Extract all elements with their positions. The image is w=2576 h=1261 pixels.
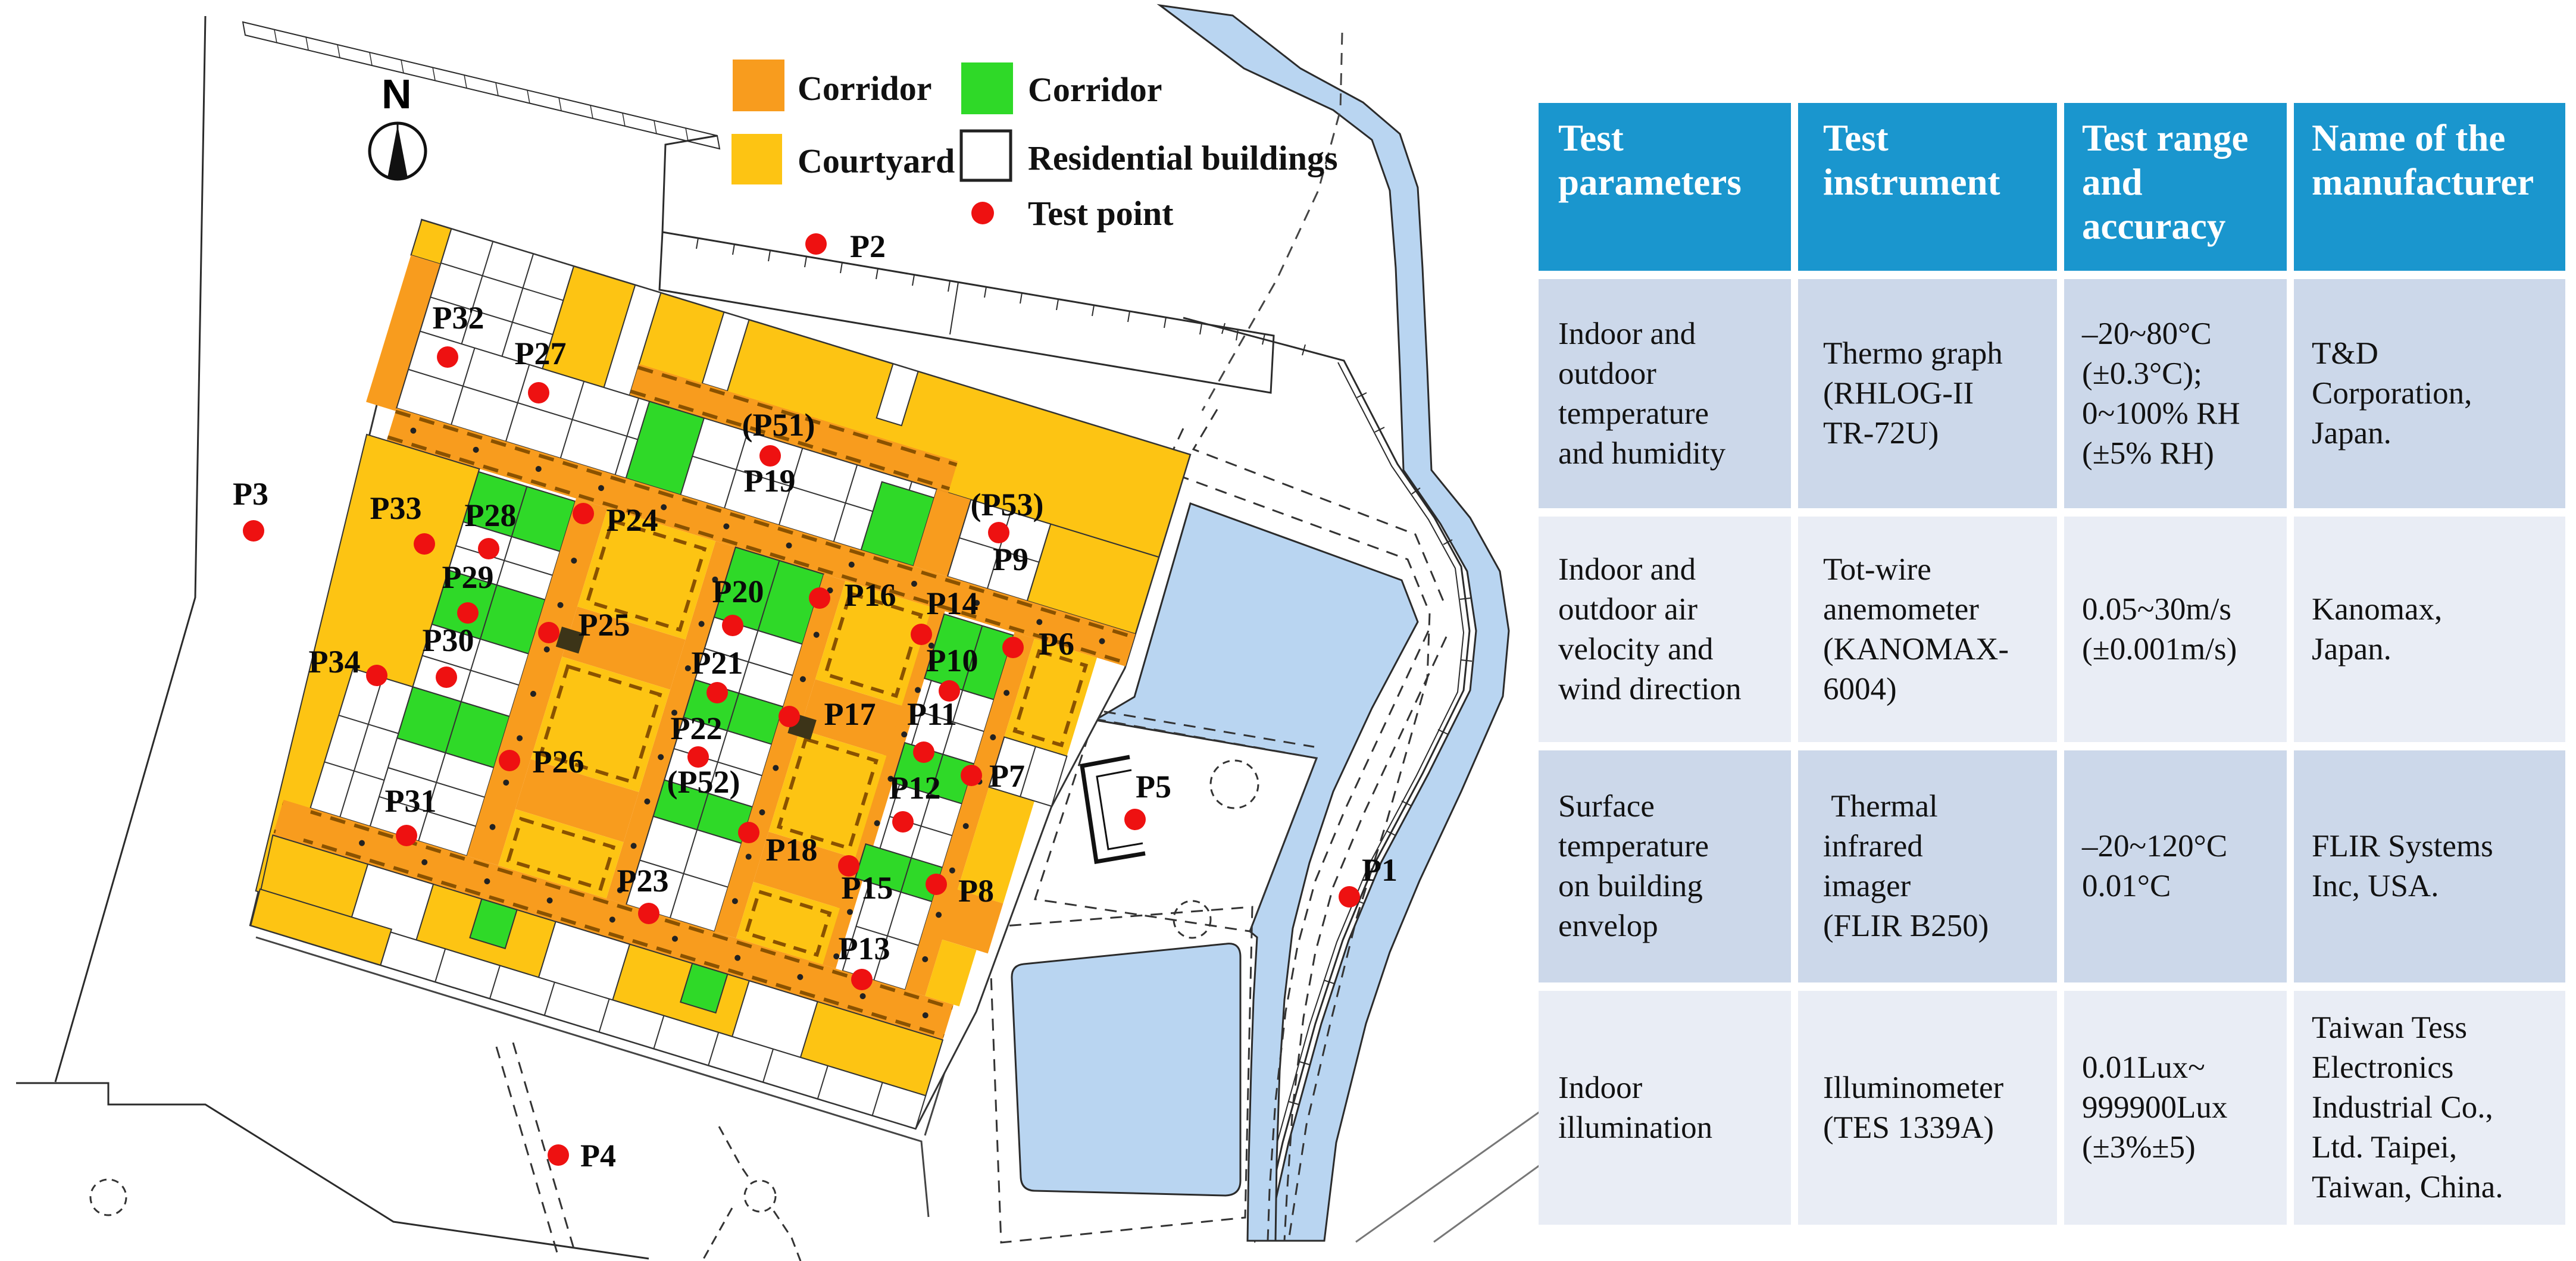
svg-text:Residential buildings: Residential buildings (1028, 139, 1338, 177)
svg-text:P8: P8 (958, 873, 994, 909)
svg-text:P15: P15 (842, 870, 893, 906)
svg-text:P23: P23 (617, 863, 669, 899)
svg-text:Corridor: Corridor (798, 69, 932, 108)
svg-text:Courtyard: Courtyard (798, 142, 955, 180)
svg-text:P30: P30 (423, 622, 474, 658)
svg-text:P9: P9 (993, 542, 1028, 577)
svg-text:P29: P29 (442, 559, 494, 595)
svg-text:P21: P21 (692, 645, 743, 681)
svg-text:P13: P13 (839, 931, 890, 966)
svg-text:P24: P24 (607, 502, 658, 538)
svg-text:P10: P10 (927, 643, 978, 678)
svg-text:P1: P1 (1362, 852, 1398, 888)
svg-text:P19: P19 (744, 463, 796, 499)
svg-text:P25: P25 (579, 607, 630, 643)
svg-text:N: N (382, 71, 412, 117)
svg-text:P6: P6 (1039, 626, 1074, 662)
svg-text:Corridor: Corridor (1028, 70, 1162, 109)
svg-text:P14: P14 (927, 586, 978, 621)
svg-text:P34: P34 (309, 644, 361, 680)
svg-text:P18: P18 (766, 832, 818, 868)
svg-text:P11: P11 (907, 696, 957, 732)
svg-text:P28: P28 (465, 497, 517, 533)
svg-text:P33: P33 (370, 490, 422, 526)
svg-text:P5: P5 (1136, 769, 1171, 805)
svg-text:P31: P31 (385, 783, 437, 819)
svg-text:P16: P16 (845, 577, 896, 613)
svg-text:P2: P2 (850, 229, 886, 264)
svg-text:P4: P4 (580, 1138, 616, 1174)
svg-text:P22: P22 (671, 711, 723, 746)
svg-text:(P52): (P52) (667, 764, 740, 800)
svg-text:(P51): (P51) (742, 407, 815, 443)
svg-text:P7: P7 (989, 758, 1025, 794)
svg-text:P32: P32 (433, 300, 484, 336)
svg-text:P17: P17 (824, 696, 876, 732)
svg-text:P26: P26 (533, 744, 584, 780)
svg-text:P12: P12 (889, 770, 941, 806)
svg-text:Test point: Test point (1028, 194, 1174, 233)
svg-text:(P53): (P53) (971, 487, 1044, 522)
svg-text:P20: P20 (712, 574, 764, 609)
svg-text:P3: P3 (233, 476, 268, 512)
svg-text:P27: P27 (515, 336, 567, 371)
